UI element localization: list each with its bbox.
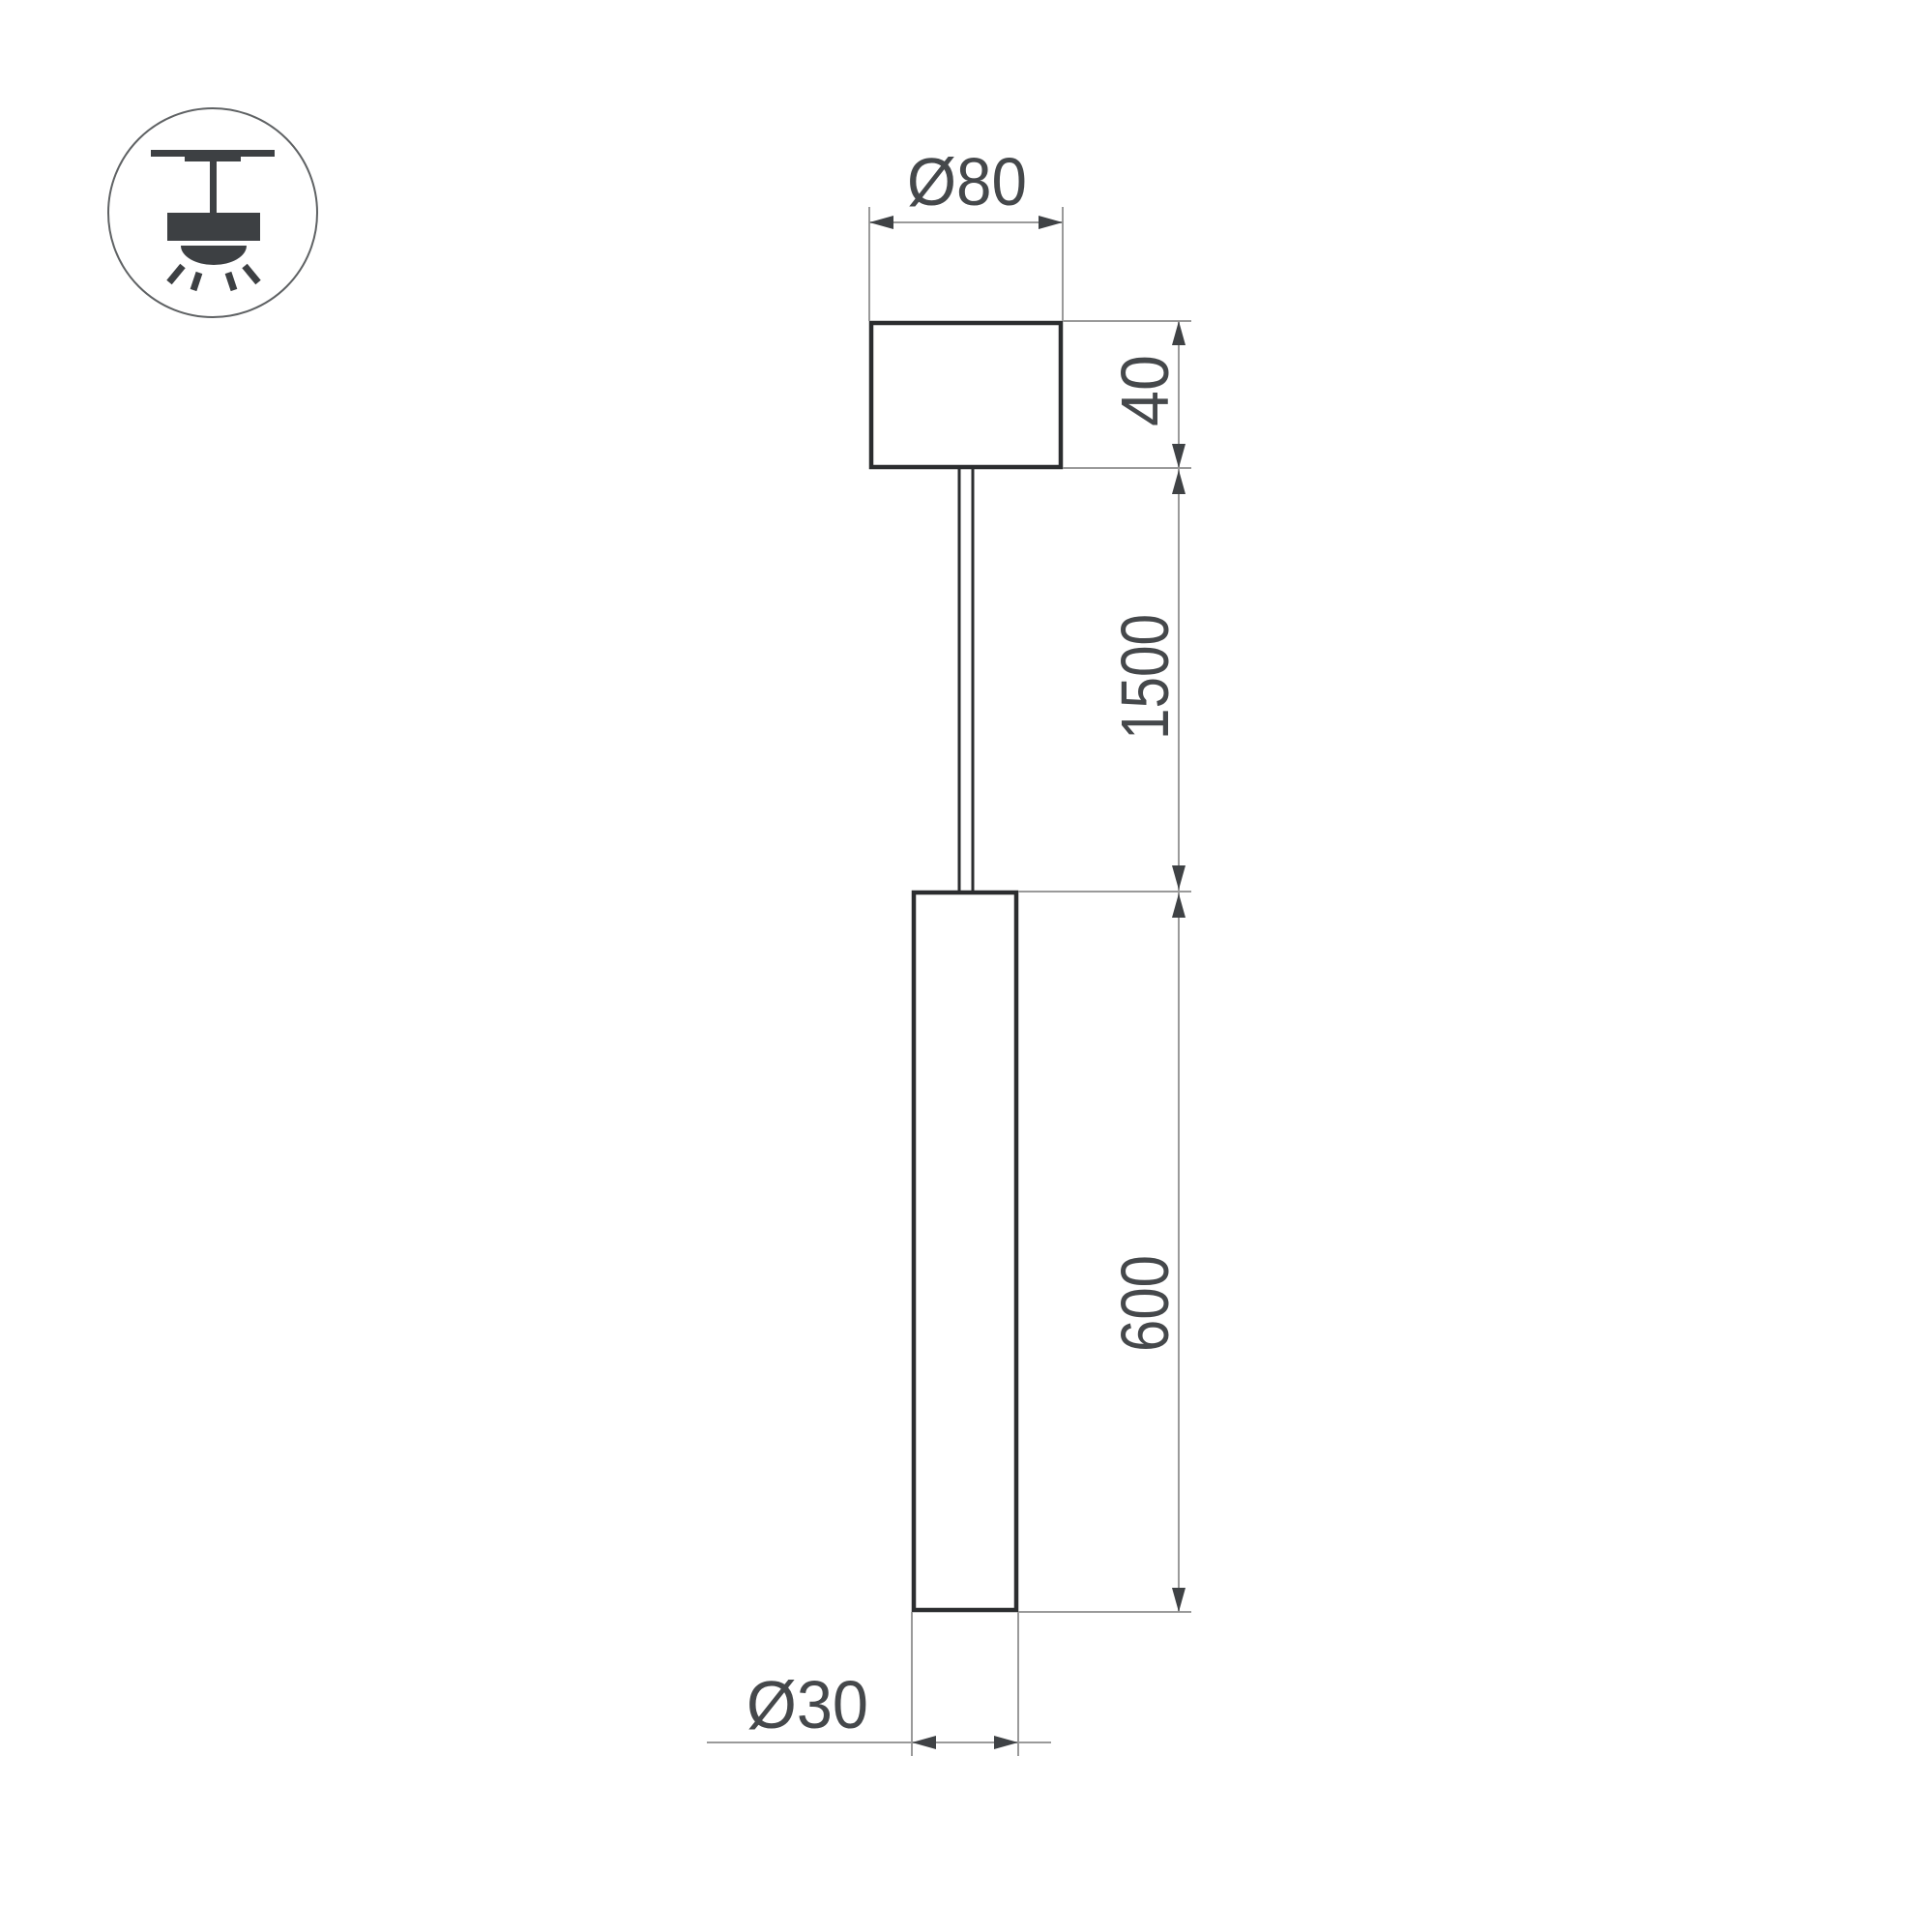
arrow-down-icon: [1172, 865, 1186, 890]
icon-lamp-body: [167, 213, 260, 241]
icon-stem: [210, 157, 217, 216]
arrow-right-icon: [1039, 216, 1063, 229]
tube-diameter-label: Ø30: [746, 1667, 868, 1742]
dimension-drawing: Ø80 40 1500 600 Ø30: [0, 0, 1932, 1932]
arrow-right-icon: [994, 1736, 1018, 1749]
arrow-up-icon: [1172, 321, 1186, 345]
luminaire-outline: [871, 323, 1061, 1610]
tube-length-label: 600: [1107, 1255, 1183, 1352]
tube-outline: [914, 893, 1016, 1610]
canopy-height-label: 40: [1107, 355, 1183, 426]
canopy-outline: [871, 323, 1061, 467]
arrow-down-icon: [1172, 1588, 1186, 1612]
arrow-up-icon: [1172, 470, 1186, 494]
pendant-light-icon: [108, 108, 317, 317]
arrow-up-icon: [1172, 893, 1186, 918]
suspension-length-label: 1500: [1107, 614, 1183, 740]
arrow-down-icon: [1172, 444, 1186, 468]
arrow-left-icon: [869, 216, 893, 229]
canopy-diameter-label: Ø80: [907, 144, 1027, 220]
arrow-left-icon: [912, 1736, 936, 1749]
